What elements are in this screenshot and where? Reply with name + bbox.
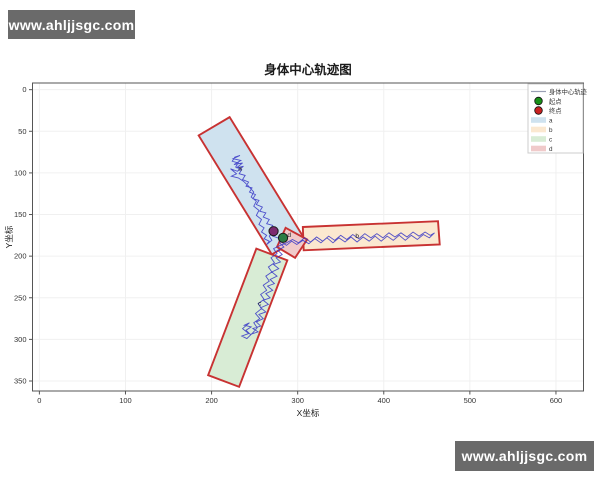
y-axis-label: Y坐标 [4, 225, 14, 248]
region-a-label: a [238, 165, 242, 172]
legend-label: 终点 [549, 106, 562, 115]
region-b-label: b [355, 233, 359, 240]
legend-patch-swatch [531, 117, 546, 123]
x-tick-label: 300 [291, 396, 304, 405]
legend-label: a [549, 117, 553, 124]
y-tick-label: 300 [14, 335, 27, 344]
legend-patch-swatch [531, 136, 546, 142]
legend-label: 身体中心轨迹 [549, 87, 587, 96]
x-tick-label: 400 [378, 396, 391, 405]
y-tick-label: 150 [14, 210, 27, 219]
y-tick-label: 200 [14, 252, 27, 261]
y-tick-label: 50 [18, 127, 26, 136]
x-tick-label: 200 [205, 396, 218, 405]
trajectory-chart: 0100200300400500600050100150200250300350… [0, 0, 600, 480]
y-tick-label: 0 [22, 85, 26, 94]
legend-label: c [549, 136, 552, 143]
x-tick-label: 0 [37, 396, 41, 405]
legend-label: d [549, 146, 553, 153]
end-point-marker [269, 227, 278, 236]
watermark-top-left: www.ahljjsgc.com [8, 10, 135, 39]
legend-marker-swatch [535, 97, 543, 105]
legend-label: 起点 [549, 97, 562, 105]
x-tick-label: 600 [550, 396, 563, 405]
y-tick-label: 100 [14, 168, 27, 177]
watermark-text: www.ahljjsgc.com [462, 448, 588, 464]
legend-patch-swatch [531, 146, 546, 152]
legend-label: b [549, 127, 553, 134]
x-tick-label: 500 [464, 396, 477, 405]
watermark-bottom-right: www.ahljjsgc.com [455, 441, 594, 471]
x-tick-label: 100 [119, 396, 132, 405]
figure-canvas: www.ahljjsgc.com 01002003004005006000501… [0, 0, 600, 480]
x-axis-label: X坐标 [297, 408, 320, 418]
start-point-marker [278, 233, 287, 242]
y-tick-label: 250 [14, 293, 27, 302]
chart-title: 身体中心轨迹图 [264, 62, 352, 77]
legend-marker-swatch [535, 107, 543, 115]
y-tick-label: 350 [14, 377, 27, 386]
legend-patch-swatch [531, 127, 546, 133]
watermark-text: www.ahljjsgc.com [9, 17, 135, 33]
region-c-polygon [208, 249, 287, 387]
